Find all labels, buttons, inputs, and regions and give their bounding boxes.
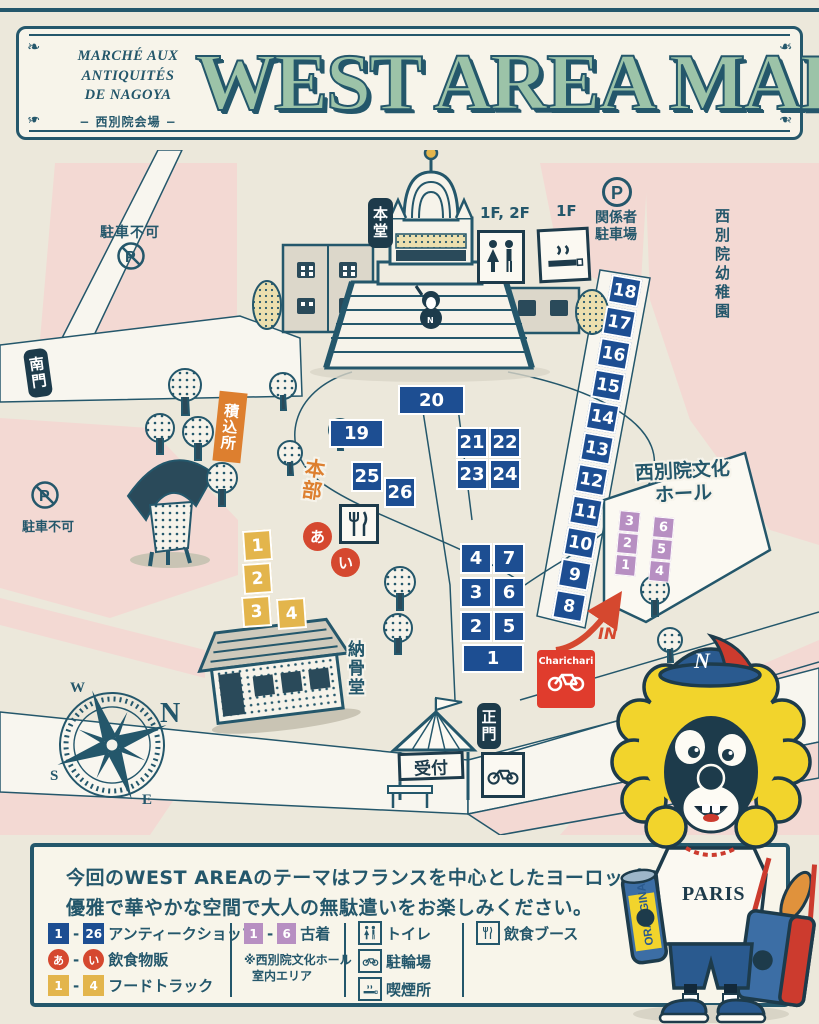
booth-14: 14 — [585, 400, 621, 434]
staff-parking-label: 関係者 駐車場 — [595, 210, 637, 244]
legend-clothes: 1 - 6 古着 — [244, 923, 330, 944]
venue-subtitle: − 西別院会場 − — [53, 113, 203, 130]
panel-line2: 優雅で華やかな空間で大人の無駄遣いをお楽しみください。 — [66, 893, 593, 920]
smoking-floor-label: 1F — [556, 202, 577, 220]
staff-parking-line2: 駐車場 — [595, 227, 637, 244]
booth-8: 8 — [551, 589, 587, 623]
smoking-icon — [358, 977, 382, 1001]
truck-4: 4 — [276, 597, 307, 630]
legend-truck-to: 4 — [83, 975, 104, 996]
legend-toilet: トイレ — [358, 921, 431, 945]
legend-stall-from: あ — [48, 949, 69, 970]
legend-antique-from: 1 — [48, 923, 69, 944]
booth-10: 10 — [563, 526, 599, 560]
legend-truck-from: 1 — [48, 975, 69, 996]
hq-label: 本部 — [295, 456, 330, 504]
booth-15: 15 — [590, 369, 626, 403]
legend-food-booth-label: 飲食ブース — [504, 923, 578, 944]
staff-parking-line1: 関係者 — [595, 210, 637, 227]
charichari-station: Charichari — [537, 650, 595, 708]
legend-divider — [344, 923, 346, 997]
toilet-floor-label: 1F, 2F — [480, 204, 530, 222]
main-hall-label: 本堂 — [368, 198, 393, 248]
poster-page: ❧ ❧ ❧ ❧ MARCHÉ AUX ANTIQUITÉS DE NAGOYA … — [0, 0, 819, 1024]
legend-dash: - — [73, 951, 79, 969]
parking-icon: P — [601, 176, 633, 208]
booth-13: 13 — [579, 432, 615, 466]
no-parking-text-left: 駐車不可 — [22, 516, 74, 535]
booth-21: 21 — [456, 427, 488, 458]
booth-19: 19 — [329, 419, 384, 448]
charichari-bike-icon — [546, 667, 586, 693]
smoking-map-box — [537, 227, 592, 284]
booth-12: 12 — [574, 463, 610, 497]
legend-antique-to: 26 — [83, 923, 104, 944]
fork-knife-icon — [347, 511, 371, 537]
legend-clothes-from: 1 — [244, 923, 263, 944]
ossuary-building — [195, 617, 362, 740]
no-parking-icon: P — [30, 480, 60, 510]
legend-truck: 1 - 4 フードトラック — [48, 975, 213, 996]
booth-5: 5 — [493, 611, 525, 642]
legend-antique: 1 - 26 アンティークショップ — [48, 923, 257, 944]
top-rule — [0, 8, 819, 12]
booth-16: 16 — [596, 337, 632, 371]
mascot-cap-icon: N — [660, 636, 760, 686]
header-frame: ❧ ❧ ❧ ❧ MARCHÉ AUX ANTIQUITÉS DE NAGOYA … — [16, 26, 803, 140]
clothes-3: 3 — [618, 510, 641, 533]
truck-3: 3 — [241, 595, 272, 628]
bicycle-icon — [486, 763, 520, 787]
booth-4: 4 — [460, 543, 492, 574]
booth-9: 9 — [557, 558, 593, 592]
brand-line1: MARCHÉ AUX — [53, 47, 203, 67]
booth-17: 17 — [601, 306, 637, 340]
mascot-cap-letter: N — [693, 648, 711, 673]
page-title: WEST AREA MAP — [195, 36, 815, 129]
reception-sign: 受付 — [398, 751, 465, 781]
fork-knife-icon — [476, 921, 500, 945]
culture-hall-label: 西別院文化 ホール — [619, 457, 747, 509]
clothes-4: 4 — [648, 560, 671, 583]
booth-6: 6 — [493, 577, 525, 608]
charichari-label: Charichari — [539, 656, 594, 667]
legend-clothes-note2: 室内エリア — [252, 967, 312, 984]
legend-dash: - — [73, 925, 79, 943]
compass-e: E — [142, 792, 152, 809]
stall-a: あ — [303, 522, 332, 551]
legend-divider — [230, 923, 232, 997]
booth-25: 25 — [351, 461, 383, 492]
legend-stall-label: 飲食物販 — [108, 949, 168, 970]
compass-w: W — [70, 680, 85, 697]
food-booth-map-box — [339, 504, 379, 544]
clothes-5: 5 — [650, 538, 673, 561]
truck-2: 2 — [242, 562, 273, 595]
no-parking-icon: P — [116, 241, 146, 271]
booth-1: 1 — [462, 644, 524, 673]
booth-22: 22 — [489, 427, 521, 458]
corner-flourish-icon: ❧ — [27, 111, 40, 127]
legend-stall-to: い — [83, 949, 104, 970]
legend-food-booth: 飲食ブース — [476, 921, 578, 945]
legend-bicycle-label: 駐輪場 — [386, 951, 431, 972]
legend-toilet-label: トイレ — [386, 923, 431, 944]
booth-18: 18 — [607, 274, 643, 308]
booth-7: 7 — [493, 543, 525, 574]
clothes-2: 2 — [616, 532, 639, 555]
stall-i: い — [331, 548, 360, 577]
legend-clothes-to: 6 — [277, 923, 296, 944]
kindergarten-label: 西別院幼稚園 — [712, 208, 733, 322]
booth-26: 26 — [384, 477, 416, 508]
clothes-1: 1 — [614, 554, 637, 577]
legend-clothes-note1: ※西別院文化ホール — [244, 951, 352, 968]
legend-truck-label: フードトラック — [108, 975, 213, 996]
legend-dash: - — [267, 925, 273, 943]
compass-n: N — [160, 698, 180, 730]
booth-11: 11 — [568, 495, 604, 529]
legend-smoking: 喫煙所 — [358, 977, 431, 1001]
smoking-icon — [543, 237, 585, 273]
booth-24: 24 — [489, 459, 521, 490]
legend-divider — [462, 923, 464, 997]
main-gate-label: 正門 — [477, 703, 501, 749]
ossuary-label: 納骨堂 — [342, 640, 367, 697]
legend-dash: - — [73, 977, 79, 995]
toilet-map-box — [477, 230, 525, 284]
corner-flourish-icon: ❧ — [27, 39, 40, 55]
legend-clothes-label: 古着 — [300, 923, 330, 944]
toilet-icon — [483, 238, 519, 276]
clothes-6: 6 — [652, 516, 675, 539]
no-parking-text-top: 駐車不可 — [100, 222, 160, 242]
brand-lockup: MARCHÉ AUX ANTIQUITÉS DE NAGOYA — [53, 47, 203, 106]
header-inner-line-bottom — [29, 130, 790, 132]
truck-1: 1 — [242, 529, 273, 562]
legend-stall: あ - い 飲食物販 — [48, 949, 168, 970]
legend-antique-label: アンティークショップ — [108, 923, 257, 944]
bicycle-parking-map-box — [481, 752, 525, 798]
mascot-character: N PARIS ORANGINA — [606, 622, 819, 1024]
svg-text:P: P — [611, 183, 623, 203]
legend-bicycle: 駐輪場 — [358, 949, 431, 973]
compass-s: S — [50, 768, 58, 785]
booth-2: 2 — [460, 611, 492, 642]
brand-line3: DE NAGOYA — [53, 86, 203, 106]
booth-20: 20 — [398, 385, 465, 415]
mascot-shirt-text: PARIS — [682, 883, 746, 905]
svg-text:N: N — [427, 316, 434, 325]
bicycle-icon — [358, 949, 382, 973]
brand-line2: ANTIQUITÉS — [53, 67, 203, 87]
booth-23: 23 — [456, 459, 488, 490]
legend-smoking-label: 喫煙所 — [386, 979, 431, 1000]
booth-3: 3 — [460, 577, 492, 608]
toilet-icon — [358, 921, 382, 945]
